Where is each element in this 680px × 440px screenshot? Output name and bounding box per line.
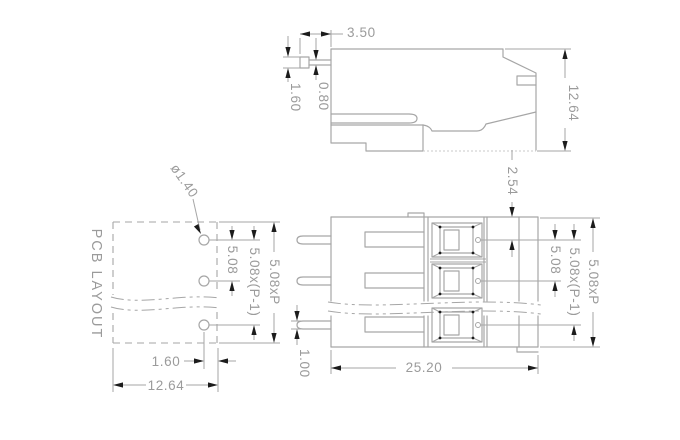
pcb-pitch-span-label: 5.08x(P-1) (247, 247, 262, 316)
top-view: 3.50 1.60 0.80 12.64 (283, 25, 581, 151)
dim-tab-tip-label: 1.60 (288, 83, 303, 112)
pcb-dimensions: ø1.40 5.08 5.08x(P-1) 5.08xP 1.60 (113, 161, 282, 393)
pcb-outline (111, 222, 219, 343)
front-pitch-label: 5.08 (548, 246, 563, 275)
pcb-hole (199, 235, 209, 245)
total-width-label: 25.20 (406, 360, 443, 375)
dim-tab-thickness-label: 0.80 (316, 82, 331, 111)
technical-drawing-page: 3.50 1.60 0.80 12.64 PCB LAYOUT (0, 0, 680, 440)
terminal-opening (432, 223, 482, 257)
pcb-hole (199, 276, 209, 286)
dim-tab-length-label: 3.50 (347, 25, 376, 40)
front-total-span-label: 5.08xP (586, 259, 601, 305)
terminal-opening (432, 308, 482, 342)
pcb-hole (199, 320, 209, 330)
terminal-opening (432, 264, 482, 298)
pcb-pitch-label: 5.08 (225, 246, 240, 275)
front-outline (297, 213, 541, 352)
front-view: 2.54 1.00 25.20 5.08 5.08x(P-1) (291, 150, 601, 378)
terminal-block-drawing: 3.50 1.60 0.80 12.64 PCB LAYOUT (0, 0, 680, 440)
pcb-total-span-label: 5.08xP (267, 259, 282, 305)
hole-diameter-label: ø1.40 (168, 161, 202, 200)
front-first-pole-label: 2.54 (505, 167, 520, 196)
pcb-layout-label: PCB LAYOUT (88, 229, 104, 340)
top-view-outline (300, 49, 536, 151)
dim-height-label: 12.64 (566, 85, 581, 122)
pin-width-label: 1.00 (297, 349, 312, 378)
pcb-width-label: 12.64 (148, 378, 185, 393)
pcb-hole-edge-label: 1.60 (152, 354, 181, 369)
terminal-openings (432, 223, 482, 342)
front-pitch-span-label: 5.08x(P-1) (567, 247, 582, 316)
pcb-layout-view: PCB LAYOUT ø1.40 5.08 (88, 161, 282, 393)
